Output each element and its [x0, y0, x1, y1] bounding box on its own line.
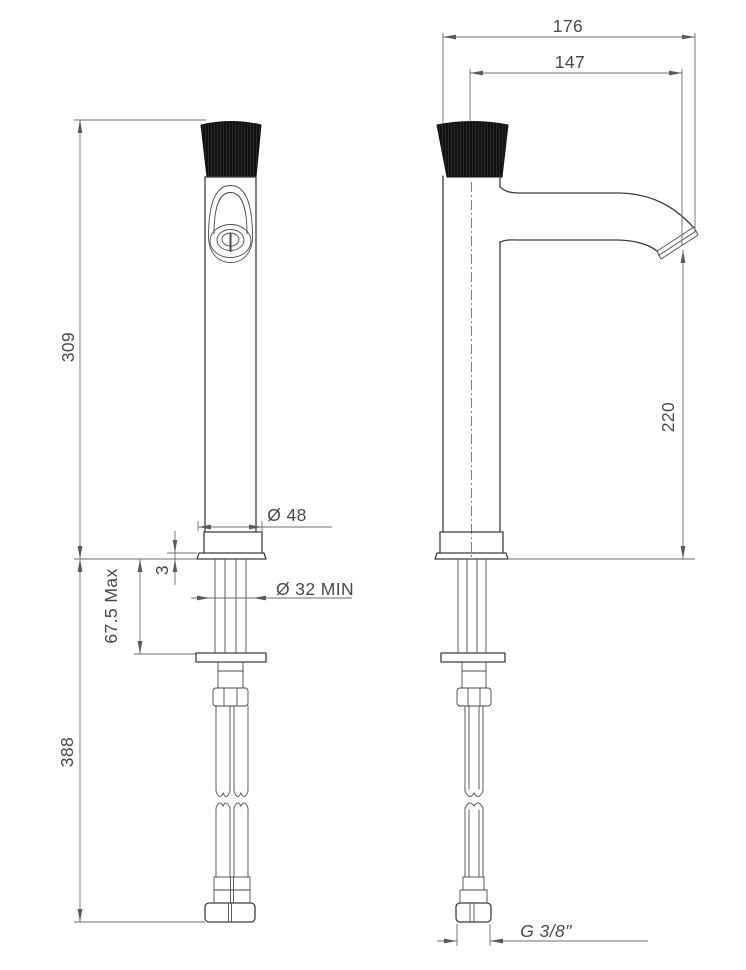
hose-nut-front: [205, 877, 255, 922]
dim-label-3: 3: [152, 565, 172, 575]
shank-front: [215, 559, 246, 653]
dimension-lines: [80, 37, 695, 941]
dim-label-309: 309: [58, 332, 78, 362]
dim-label-diameter-48: Ø 48: [267, 505, 307, 525]
dim-label-220: 220: [658, 402, 678, 432]
handle-knob-front: [201, 122, 261, 178]
mounting-washer-front: [196, 653, 266, 662]
supply-hose-side: [465, 706, 483, 877]
mounting-nut-front: [213, 662, 248, 706]
dim-label-388: 388: [57, 737, 77, 767]
handle-knob-side: [437, 122, 508, 178]
extension-lines: [74, 33, 695, 946]
supply-hoses-front: [216, 706, 248, 877]
dim-label-176: 176: [553, 16, 583, 36]
side-view: [435, 122, 698, 923]
mounting-washer-side: [441, 653, 505, 662]
aerator-front-detail: [209, 186, 253, 263]
technical-drawing-sheet: 176 147 309 220 388 67.5 Max 3 Ø 48 Ø 32…: [0, 0, 746, 970]
spout-side: [500, 187, 694, 251]
dim-label-67-5-max: 67.5 Max: [101, 568, 121, 643]
dimension-labels: 176 147 309 220 388 67.5 Max 3 Ø 48 Ø 32…: [57, 16, 678, 941]
dim-label-147: 147: [555, 52, 585, 72]
dim-label-diameter-32-min: Ø 32 MIN: [276, 579, 354, 599]
faucet-dimension-drawing: 176 147 309 220 388 67.5 Max 3 Ø 48 Ø 32…: [0, 0, 746, 970]
dimension-arrows: [78, 35, 695, 944]
aerator-side: [657, 227, 698, 259]
body-column-front: [205, 177, 256, 532]
mounting-nut-side: [457, 662, 491, 706]
shank-side: [458, 559, 486, 653]
base-flange-front: [197, 532, 266, 559]
front-view: [196, 122, 266, 923]
dim-label-g-3-8: G 3/8": [520, 921, 572, 941]
hose-nut-side: [456, 877, 491, 922]
